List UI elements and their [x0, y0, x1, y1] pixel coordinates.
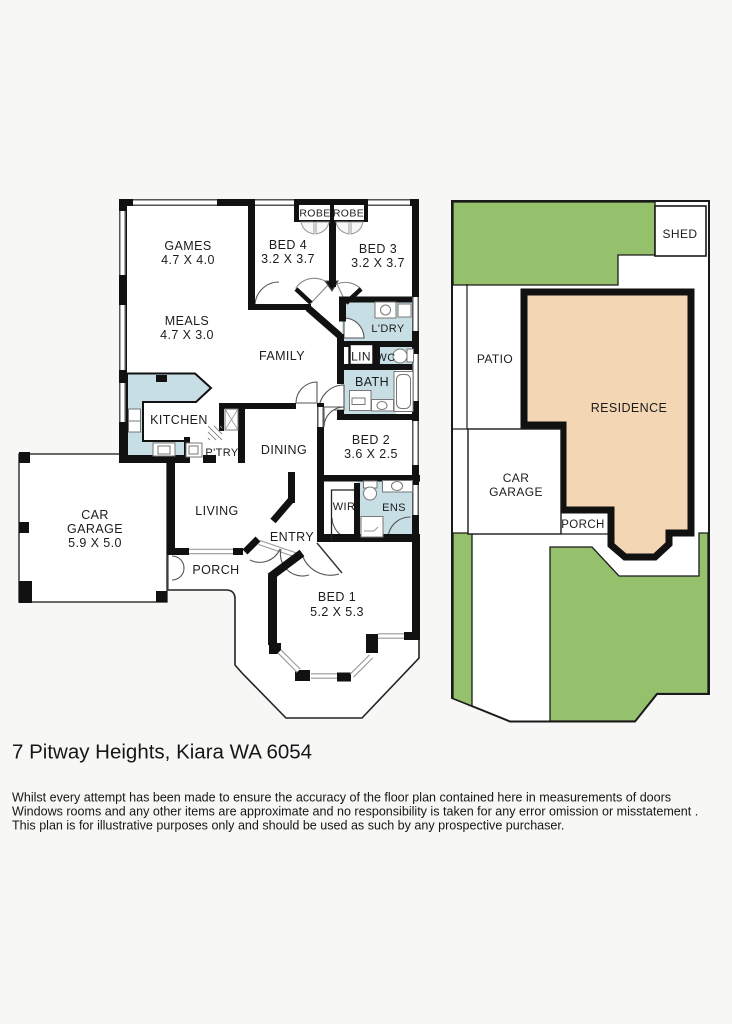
- svg-text:GAMES: GAMES: [164, 239, 211, 253]
- svg-text:Windows rooms and any other it: Windows rooms and any other items are ap…: [12, 805, 698, 819]
- svg-text:BED 4: BED 4: [269, 238, 307, 252]
- svg-text:3.2 X 3.7: 3.2 X 3.7: [351, 256, 405, 270]
- svg-text:PATIO: PATIO: [477, 352, 513, 366]
- svg-text:DINING: DINING: [261, 443, 307, 457]
- svg-text:SHED: SHED: [663, 227, 698, 241]
- svg-text:BATH: BATH: [355, 375, 389, 389]
- svg-text:BED 1: BED 1: [318, 590, 356, 604]
- svg-text:ROBE: ROBE: [299, 208, 330, 220]
- svg-text:MEALS: MEALS: [165, 314, 209, 328]
- svg-text:Whilst every attempt has been: Whilst every attempt has been made to en…: [12, 791, 671, 805]
- svg-text:4.7 X 3.0: 4.7 X 3.0: [160, 328, 214, 342]
- svg-text:WC: WC: [376, 352, 395, 364]
- svg-text:PORCH: PORCH: [192, 563, 239, 577]
- svg-text:ENS: ENS: [382, 502, 406, 514]
- svg-text:GARAGE: GARAGE: [67, 522, 123, 536]
- svg-text:3.6 X 2.5: 3.6 X 2.5: [344, 447, 398, 461]
- svg-text:P'TRY: P'TRY: [205, 447, 239, 459]
- svg-text:LIVING: LIVING: [195, 504, 238, 518]
- svg-text:CAR: CAR: [503, 471, 530, 485]
- svg-text:ROBE: ROBE: [333, 208, 364, 220]
- svg-text:RESIDENCE: RESIDENCE: [591, 401, 668, 415]
- svg-text:FAMILY: FAMILY: [259, 349, 305, 363]
- svg-text:CAR: CAR: [81, 508, 109, 522]
- svg-text:GARAGE: GARAGE: [489, 485, 543, 499]
- svg-text:7 Pitway Heights, Kiara WA 605: 7 Pitway Heights, Kiara WA 6054: [12, 741, 312, 764]
- svg-text:3.2 X 3.7: 3.2 X 3.7: [261, 252, 315, 266]
- svg-text:5.9 X 5.0: 5.9 X 5.0: [68, 536, 122, 550]
- svg-text:WIR: WIR: [333, 501, 356, 513]
- svg-text:ENTRY: ENTRY: [270, 530, 314, 544]
- svg-text:BED 3: BED 3: [359, 242, 397, 256]
- svg-text:KITCHEN: KITCHEN: [150, 413, 208, 427]
- svg-text:This plan is for illustrative: This plan is for illustrative purposes o…: [12, 819, 564, 833]
- svg-text:BED 2: BED 2: [352, 433, 390, 447]
- svg-text:L'DRY: L'DRY: [371, 323, 405, 335]
- svg-text:LIN: LIN: [351, 350, 371, 364]
- svg-text:5.2 X 5.3: 5.2 X 5.3: [310, 605, 364, 619]
- svg-text:4.7 X 4.0: 4.7 X 4.0: [161, 253, 215, 267]
- svg-text:PORCH: PORCH: [561, 519, 605, 531]
